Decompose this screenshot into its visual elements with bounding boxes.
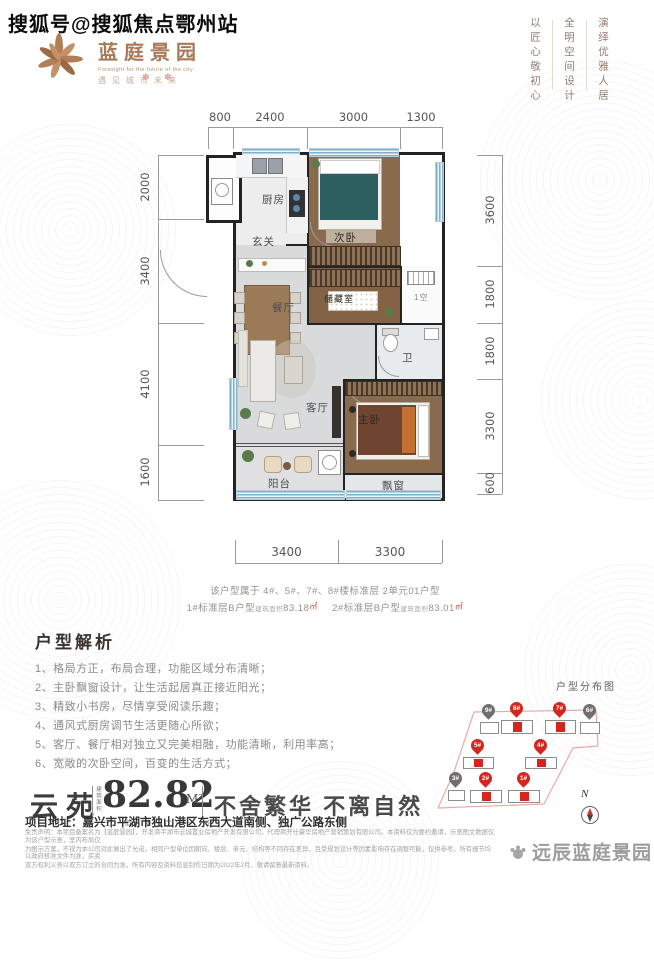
- analysis-item: 6、宽敞的次卧空间，百变的生活方式；: [35, 755, 415, 771]
- legal-disclaimer: 免责声明：本项目备案名为【蓝庭景园】，开发商平湖市云城置业房地产开发有限公司，代…: [25, 829, 495, 871]
- dim-tick: [307, 127, 308, 149]
- balcony-door: [236, 443, 343, 447]
- bedroom2-window: [309, 148, 399, 157]
- caption-seg1: 1#标准层B户型: [187, 603, 255, 614]
- dim-left-1: 2000: [138, 162, 152, 212]
- bedroom2-side-window: [435, 162, 444, 222]
- bath-sink-icon: [424, 328, 439, 340]
- building-7: [545, 720, 576, 734]
- room-label-bath: 卫: [402, 350, 414, 365]
- armchair-icon: [257, 411, 276, 430]
- building-5: [463, 757, 494, 769]
- wall: [375, 323, 377, 379]
- slogan-col-3: 演绎优雅人居: [596, 16, 611, 104]
- legal-line: 为图示方案，不视为本公司对此做出了允诺。相同户型单位因朝向、楼层、单元、结构等不…: [25, 846, 495, 861]
- analysis-item: 3、精致小书房，尽情享受阅读乐趣；: [35, 698, 415, 714]
- dim-tick: [208, 127, 209, 149]
- building-4: [525, 757, 557, 769]
- vertical-slogans: 以匠心敬初心 全明空间设计 演绎优雅人居: [528, 16, 611, 104]
- compass-needle-icon: [587, 808, 593, 815]
- legal-line: 双方权利义务以双方订立的合同为准。所有内容及资料信息制作日期为2022年2月，敬…: [25, 862, 495, 870]
- dim-tick: [442, 127, 443, 149]
- footer-watermark-text: 远辰蓝庭景园: [532, 838, 652, 865]
- area-unit: M²: [186, 792, 203, 806]
- dim-bottom-2: 3300: [338, 545, 442, 559]
- analysis-item: 5、客厅、餐厅相对独立又完美相融，功能清晰，利用率高；: [35, 736, 415, 752]
- analysis-title: 户型解析: [35, 628, 115, 653]
- dim-top-3: 3000: [307, 110, 400, 124]
- balcony-chair-icon: [264, 456, 282, 473]
- nightstand-icon: [349, 406, 356, 413]
- pin-9: 9#: [479, 701, 497, 719]
- tv-cabinet: [332, 386, 341, 438]
- dim-tick: [158, 445, 204, 446]
- highlight-core: [474, 759, 483, 767]
- dim-line-left: [158, 155, 159, 500]
- wall: [343, 379, 345, 495]
- bed2-pillows: [320, 160, 380, 174]
- highlight-core: [556, 722, 565, 732]
- pin-2: 2#: [476, 769, 494, 787]
- highlight-core: [520, 792, 529, 801]
- analysis-item: 1、格局方正，布局合理，功能区域分布清晰；: [35, 660, 415, 676]
- burner-icon: [293, 194, 300, 201]
- dim-right-2: 1800: [483, 269, 497, 319]
- sofa: [250, 340, 276, 402]
- building-9: [480, 722, 499, 734]
- storage-shelf: [309, 269, 401, 287]
- dim-tick: [477, 379, 502, 380]
- balcony-chair-icon: [294, 456, 312, 473]
- bedroom2-wardrobe: [309, 246, 401, 266]
- dim-right-1: 3600: [483, 185, 497, 235]
- caption-small1: 建筑面积: [255, 606, 283, 613]
- toilet-icon: [383, 334, 398, 352]
- coffee-table: [284, 356, 303, 384]
- logo-name: 蓝庭景园: [98, 36, 202, 65]
- entry-door-arc: [160, 250, 207, 297]
- pin-3: 3#: [446, 769, 464, 787]
- site-distribution-map: 户型分布图 N 9# 8# 7# 6# 5# 4# 3# 2# 1#: [430, 672, 654, 832]
- armchair-icon: [283, 412, 301, 430]
- project-address: 项目地址：嘉兴市平湖市独山港区东西大道南侧、独广公路东侧: [25, 814, 347, 830]
- decor-icon: [262, 261, 267, 266]
- room-label-master: 主卧: [358, 412, 381, 427]
- dim-tick: [477, 266, 502, 267]
- dim-right-5: 600: [483, 458, 497, 508]
- chair-icon: [234, 312, 245, 324]
- highlight-core: [537, 759, 546, 767]
- wall: [307, 323, 442, 325]
- room-label-bedroom2: 次卧: [334, 230, 357, 245]
- building-2: [470, 790, 502, 803]
- paw-logo-icon: [508, 842, 528, 862]
- sink-icon: [268, 158, 283, 174]
- balcony-table-icon: [283, 462, 291, 470]
- plant-icon: [240, 408, 251, 419]
- room-label-kitchen: 厨房: [262, 192, 285, 207]
- washer-drum-icon: [322, 455, 337, 470]
- legal-line: 免责声明：本项目备案名为【蓝庭景园】，开发商平湖市云城置业房地产开发有限公司，代…: [25, 829, 495, 844]
- ac-unit-icon: [407, 271, 435, 285]
- dim-line-top: [208, 127, 442, 128]
- master-throw: [402, 407, 415, 453]
- wall: [343, 473, 442, 475]
- bg-circle: [540, 300, 654, 500]
- slogan-col-2: 全明空间设计: [562, 16, 577, 104]
- room-label-bay-window: 飘窗: [382, 478, 405, 493]
- pin-6: 6#: [580, 701, 598, 719]
- dim-left-3: 4100: [138, 359, 152, 409]
- dim-tick: [233, 127, 234, 149]
- plan-caption-line1: 该户型属于 4#、5#、7#、8#楼标准层 2单元01户型: [150, 583, 500, 597]
- nightstand-icon: [349, 450, 356, 457]
- caption-unit2: ㎡: [455, 602, 464, 611]
- dim-top-2: 2400: [233, 110, 307, 124]
- footer-watermark: 远辰蓝庭景园: [508, 838, 652, 865]
- dim-tick: [400, 127, 401, 149]
- dim-bottom-1: 3400: [235, 545, 338, 559]
- dim-tick: [477, 155, 502, 156]
- media-cabinet: [238, 330, 248, 387]
- floor-plan: 厨房 玄关 次卧 餐厅 储藏室 卫 客厅 主卧 阳台 飘窗 1空: [206, 150, 442, 512]
- dim-left-4: 1600: [138, 447, 152, 497]
- room-label-foyer: 玄关: [252, 234, 275, 249]
- dim-tick: [442, 540, 443, 563]
- wall: [307, 266, 400, 268]
- room-label-ac: 1空: [414, 292, 428, 303]
- dim-tick: [158, 323, 204, 324]
- caption-val2: 83.01: [429, 603, 455, 614]
- dim-tick: [477, 323, 502, 324]
- dim-line-right: [502, 155, 503, 494]
- analysis-item: 2、主卧飘窗设计，让生活起居真正接近阳光；: [35, 679, 415, 695]
- pin-5: 5#: [468, 736, 486, 754]
- room-label-living: 客厅: [306, 400, 329, 415]
- plant-icon: [246, 260, 253, 267]
- room-label-balcony: 阳台: [268, 476, 291, 491]
- plant-icon: [312, 160, 320, 168]
- dim-top-4: 1300: [400, 110, 442, 124]
- caption-unit1: ㎡: [309, 602, 318, 611]
- caption-seg2: 2#标准层B户型: [332, 603, 400, 614]
- wall: [286, 244, 307, 246]
- room-label-storage: 储藏室: [324, 292, 354, 305]
- pin-1: 1#: [514, 769, 532, 787]
- bg-circle: [0, 120, 180, 340]
- master-wardrobe: [345, 381, 442, 396]
- plan-caption-line2: 1#标准层B户型建筑面积83.18㎡ 2#标准层B户型建筑面积83.01㎡: [150, 600, 500, 614]
- master-pillows: [418, 405, 429, 457]
- building-8: [501, 720, 533, 734]
- caption-val1: 83.18: [283, 603, 309, 614]
- highlight-core: [482, 792, 491, 801]
- highlight-core: [513, 722, 522, 732]
- caption-small2: 建筑面积: [401, 606, 429, 613]
- room-label-dining: 餐厅: [272, 300, 295, 315]
- bed2-blanket: [320, 174, 378, 220]
- slogan-divider: [586, 20, 587, 90]
- sink-icon: [252, 158, 267, 174]
- chair-icon: [234, 292, 245, 304]
- analysis-item: 4、通风式厨房调节生活更随心所欲；: [35, 717, 415, 733]
- slogan-col-1: 以匠心敬初心: [528, 16, 543, 104]
- building-3: [448, 790, 465, 801]
- balcony-window: [236, 490, 345, 500]
- dim-tick: [158, 219, 204, 220]
- pin-7: 7#: [550, 699, 568, 717]
- building-1: [508, 790, 540, 803]
- building-6: [580, 722, 600, 734]
- decor-marks: ✽ ✽: [142, 72, 178, 83]
- flower-logo-icon: [28, 26, 90, 88]
- living-side-window: [229, 378, 238, 430]
- plant-icon: [385, 308, 394, 317]
- dim-right-4: 3300: [483, 401, 497, 451]
- dim-tick: [158, 155, 204, 156]
- area-small-label: 建筑面积: [94, 786, 102, 812]
- compass-n-label: N: [581, 788, 588, 800]
- plant-icon: [242, 450, 254, 462]
- dim-tick: [158, 500, 204, 501]
- dim-left-2: 3400: [138, 246, 152, 296]
- fridge-drum-icon: [215, 183, 229, 197]
- pin-8: 8#: [507, 699, 525, 717]
- pin-4: 4#: [531, 736, 549, 754]
- slogan-divider: [552, 20, 553, 90]
- dim-line-bottom: [235, 563, 442, 564]
- dim-right-3: 1800: [483, 326, 497, 376]
- burner-icon: [293, 205, 300, 212]
